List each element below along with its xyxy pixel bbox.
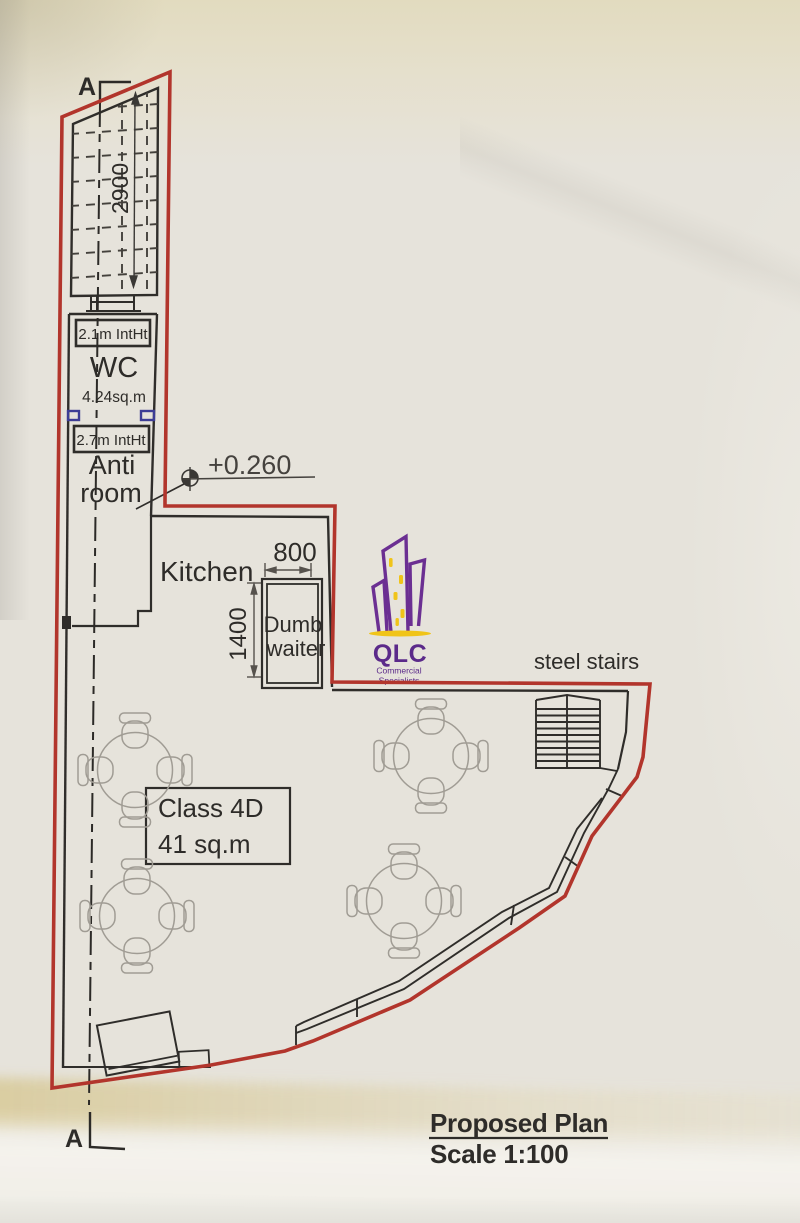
svg-text:2900: 2900: [107, 163, 133, 214]
svg-text:Dumb: Dumb: [264, 612, 323, 637]
svg-text:Kitchen: Kitchen: [160, 556, 253, 587]
svg-text:Proposed Plan: Proposed Plan: [430, 1108, 608, 1138]
svg-text:2.1m IntHt: 2.1m IntHt: [78, 326, 148, 343]
svg-text:A: A: [65, 1125, 83, 1153]
svg-text:room: room: [80, 478, 142, 508]
svg-text:A: A: [78, 73, 96, 101]
svg-text:4.24sq.m: 4.24sq.m: [82, 389, 146, 406]
svg-text:Commercial: Commercial: [376, 666, 421, 676]
svg-text:800: 800: [273, 537, 316, 567]
svg-text:Scale 1:100: Scale 1:100: [430, 1139, 568, 1169]
svg-text:1400: 1400: [225, 607, 252, 660]
svg-text:+0.260: +0.260: [208, 450, 291, 480]
svg-text:2.7m IntHt: 2.7m IntHt: [76, 432, 146, 449]
svg-text:Class 4D: Class 4D: [158, 793, 263, 823]
svg-text:waiter: waiter: [266, 636, 326, 661]
svg-text:41 sq.m: 41 sq.m: [158, 829, 251, 859]
svg-text:QLC: QLC: [373, 640, 427, 668]
svg-text:steel stairs: steel stairs: [534, 649, 639, 674]
